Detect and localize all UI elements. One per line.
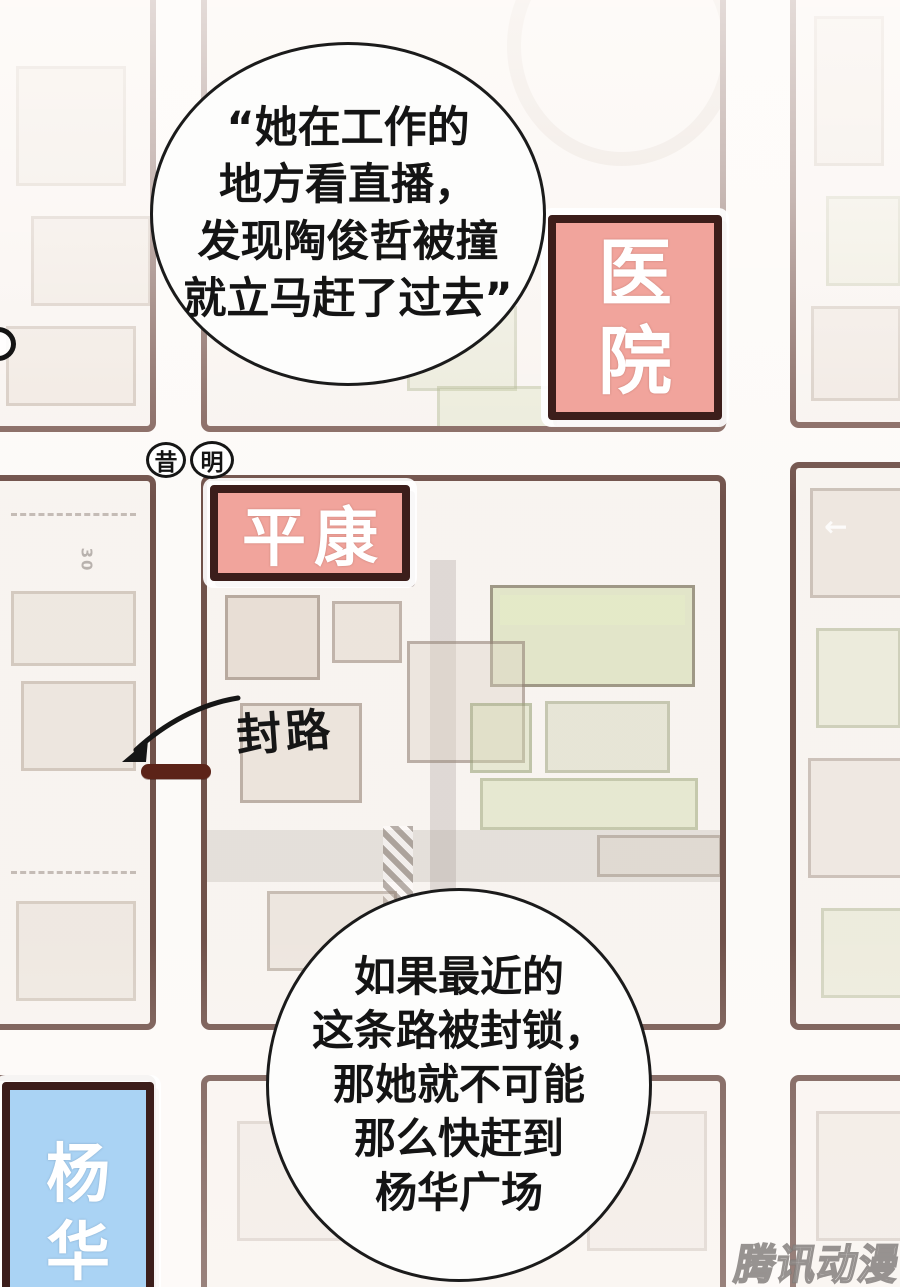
building	[826, 196, 900, 286]
building	[808, 758, 900, 878]
building	[332, 601, 402, 663]
speech-bubble-bottom: 如果最近的 这条路被封锁， 那她就不可能 那么快赶到 杨华广场	[266, 888, 652, 1282]
road-closed-arrow-icon	[112, 688, 247, 773]
circled-street-label: 昔	[146, 442, 186, 478]
building	[810, 488, 900, 598]
bubble-line: 那么快赶到	[354, 1112, 564, 1166]
building	[16, 66, 126, 186]
yanghua-sign-char: 杨	[46, 1136, 110, 1214]
city-block	[790, 0, 900, 428]
building	[545, 701, 670, 773]
comic-map-panel: 30 ← 医	[0, 0, 900, 1287]
pingkang-sign-label: 平康	[234, 487, 386, 579]
building	[816, 628, 900, 728]
building	[437, 386, 557, 431]
hospital-sign: 医 院	[548, 215, 722, 420]
road-closed-label: 封路	[234, 693, 336, 765]
building	[470, 703, 532, 773]
bubble-line: 那她就不可能	[333, 1058, 585, 1112]
bubble-line: 地方看直播，	[219, 157, 477, 214]
building	[6, 326, 136, 406]
curved-road	[507, 0, 726, 166]
left-arrow-road-marking: ←	[824, 510, 847, 543]
bubble-line: 如果最近的	[354, 950, 564, 1004]
lawn	[480, 778, 698, 830]
pingkang-sign: 平康	[210, 485, 410, 581]
bubble-line: 杨华广场	[375, 1166, 543, 1220]
lane-marking	[11, 871, 136, 874]
bubble-line: 就立马赶了过去”	[183, 271, 512, 328]
circled-street-label: 明	[190, 441, 234, 479]
speech-bubble-top: “她在工作的 地方看直播， 发现陶俊哲被撞 就立马赶了过去”	[150, 42, 546, 386]
building	[814, 16, 884, 166]
building	[225, 595, 320, 680]
city-block	[0, 0, 156, 432]
yanghua-sign-char: 华	[46, 1214, 110, 1287]
building	[31, 216, 151, 306]
yanghua-sign: 杨 华	[2, 1082, 154, 1287]
building	[11, 591, 136, 666]
building	[821, 908, 900, 998]
city-block: ←	[790, 462, 900, 1030]
building	[816, 1111, 900, 1241]
tencent-comics-watermark: 腾讯动漫	[731, 1231, 900, 1287]
bubble-line: “她在工作的	[226, 100, 469, 157]
hospital-sign-char: 医	[598, 230, 672, 318]
bubble-line: 发现陶俊哲被撞	[198, 214, 499, 271]
building	[16, 901, 136, 1001]
hospital-sign-char: 院	[598, 318, 672, 406]
building	[500, 595, 685, 625]
lane-marking	[11, 513, 136, 516]
building	[597, 835, 722, 877]
building	[811, 306, 900, 401]
speed-limit-marking: 30	[77, 548, 95, 573]
bubble-line: 这条路被封锁，	[312, 1004, 606, 1058]
